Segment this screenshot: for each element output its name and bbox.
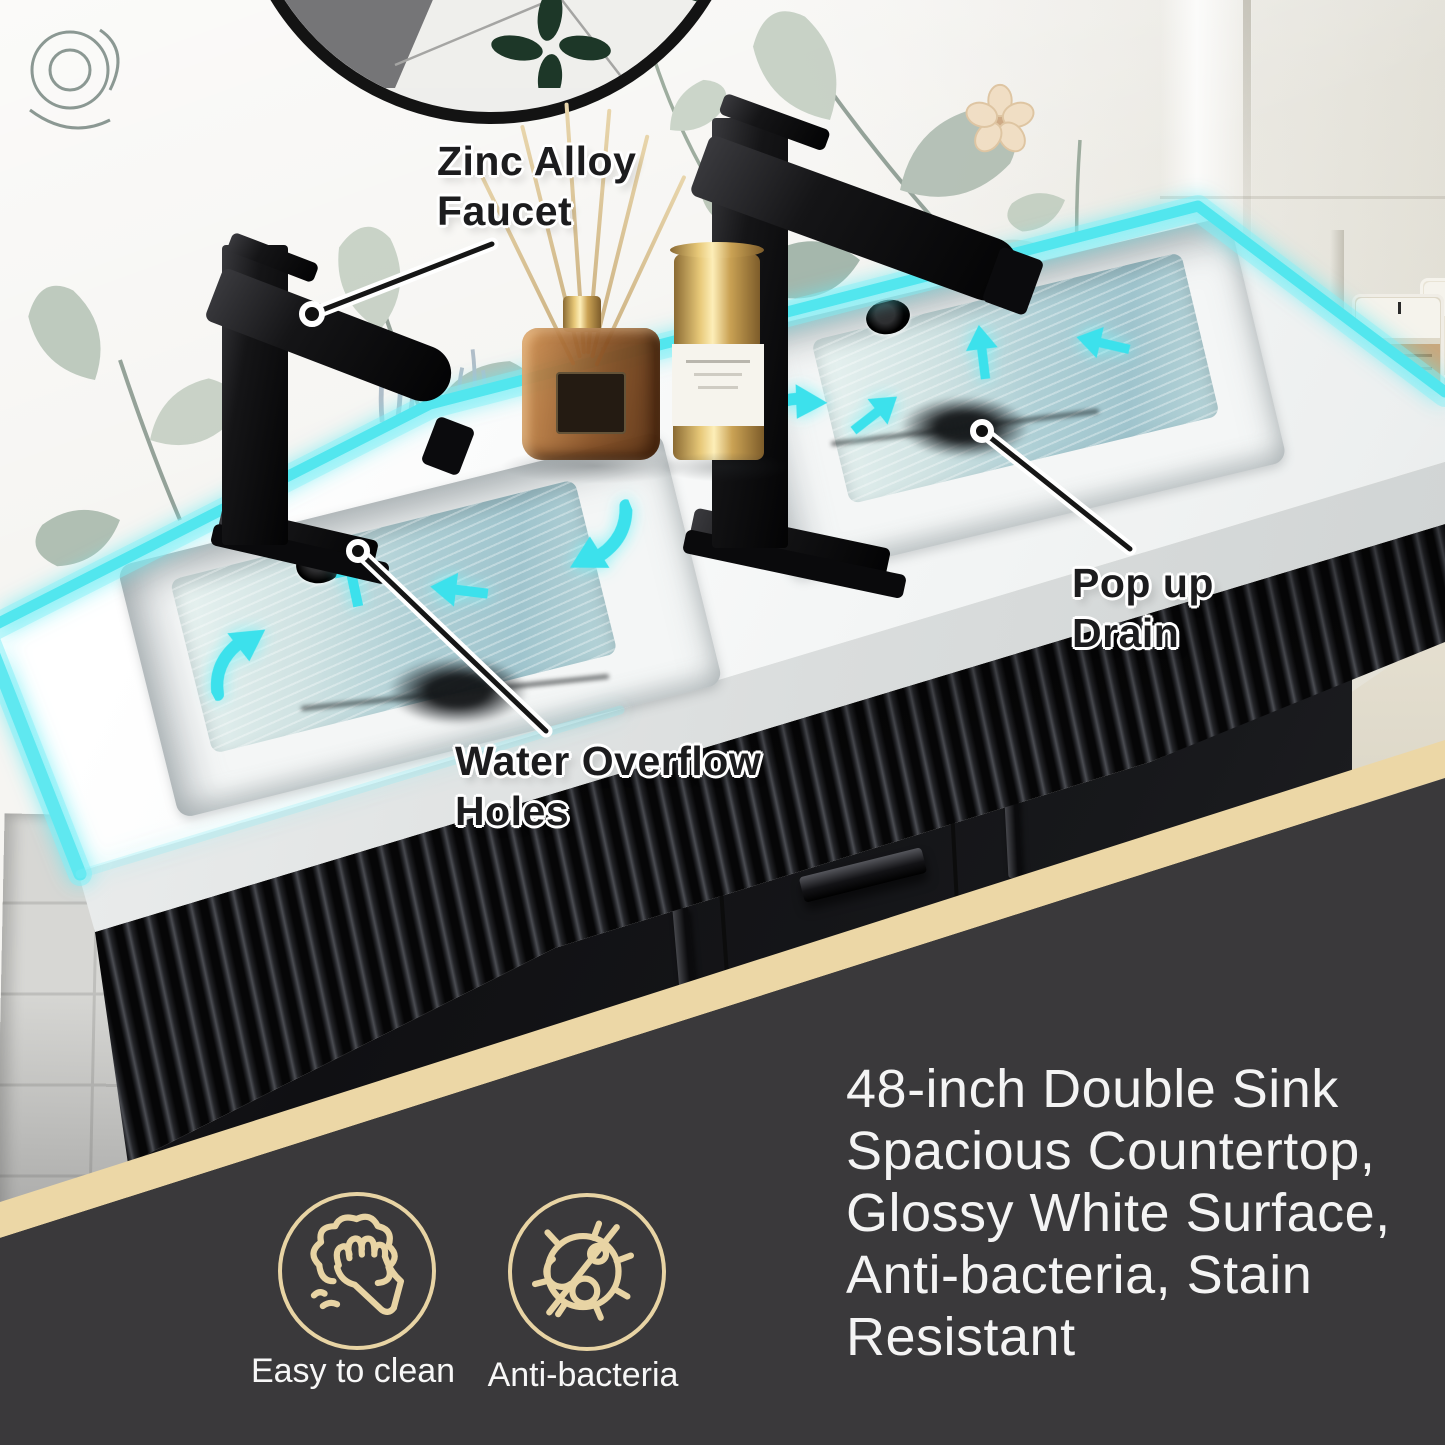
- callout-water-overflow-holes: Water Overflow Holes: [455, 736, 761, 836]
- callout-line: Drain: [1072, 608, 1214, 658]
- callout-line: Zinc Alloy: [437, 136, 636, 186]
- callout-zinc-alloy-faucet: Zinc Alloy Faucet: [437, 136, 636, 236]
- product-infographic: Easy to clean Anti-bacteria 48-inch Doub…: [0, 0, 1445, 1445]
- callout-leaders: [0, 0, 1445, 1445]
- leader-dot: [349, 542, 367, 560]
- callout-pop-up-drain: Pop up Drain: [1072, 558, 1214, 658]
- callout-line: Holes: [455, 786, 761, 836]
- callout-line: Pop up: [1072, 558, 1214, 608]
- callout-line: Faucet: [437, 186, 636, 236]
- callout-line: Water Overflow: [455, 736, 761, 786]
- leader-dot: [973, 422, 991, 440]
- leader-dot: [302, 304, 322, 324]
